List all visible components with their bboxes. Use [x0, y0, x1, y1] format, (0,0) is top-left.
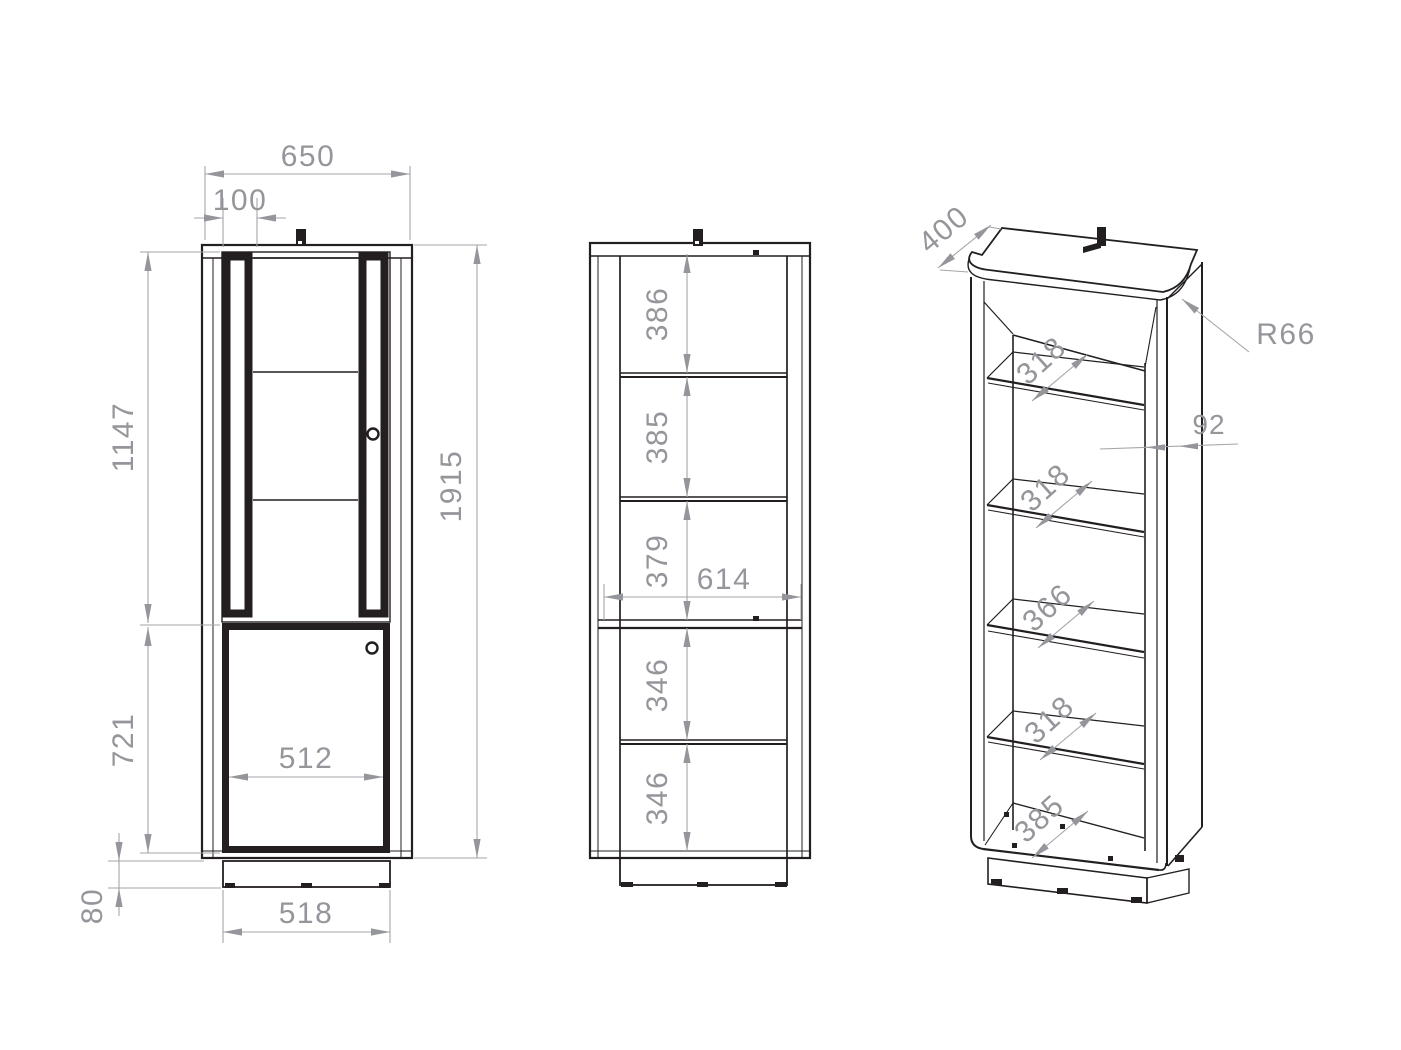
dim-front-upper-section: 1147	[107, 402, 140, 473]
dim-front-base-width: 518	[279, 897, 334, 930]
screw-hole	[1004, 812, 1009, 817]
foot-glide	[225, 883, 235, 888]
foot-glide	[1131, 897, 1142, 903]
foot-glide	[1057, 888, 1068, 894]
dim-perspective-depth: 400	[912, 200, 975, 260]
arrowhead	[1179, 443, 1198, 449]
screw-hole	[1108, 856, 1113, 861]
foot-glide	[775, 882, 787, 887]
dim-front-overall-width: 650	[281, 140, 336, 173]
hinge-mark	[753, 616, 759, 621]
foot-glide	[301, 883, 312, 888]
dim-internal-section-4: 346	[641, 658, 674, 713]
dim-shelf-2-depth: 318	[1014, 457, 1077, 518]
screw-hole	[1012, 843, 1017, 848]
dim-internal-section-5: 346	[641, 771, 674, 826]
plinth-internal	[620, 858, 787, 887]
dim-internal-section-1: 386	[641, 287, 674, 342]
dim-corner-radius: R66	[1256, 318, 1316, 351]
internal-view-dimensions: 386 385 379 346 346 614	[604, 254, 801, 851]
door-frame-strip-right	[363, 257, 385, 614]
perspective-view: 400 R66 92 318 318 366 318 385	[912, 200, 1315, 903]
screw-hole	[1060, 824, 1065, 829]
dim-front-overall-height: 1915	[435, 450, 468, 523]
cabinet-technical-drawing: 650 100 1147 721 80 191	[0, 0, 1401, 1050]
dim-internal-section-2: 385	[641, 410, 674, 465]
door-frame-strip-left	[227, 257, 249, 614]
foot-glide	[621, 882, 633, 887]
wall-mount-bracket-icon	[693, 229, 703, 246]
dim-divider-depth: 366	[1016, 577, 1079, 638]
lower-door	[226, 627, 387, 850]
front-view-dimensions: 650 100 1147 721 80 191	[76, 140, 487, 943]
dim-stile-width: 92	[1192, 409, 1225, 440]
dim-internal-section-3: 379	[641, 534, 674, 589]
door-knob	[368, 429, 379, 440]
dim-front-base-height: 80	[76, 888, 109, 924]
front-elevation-view: 650 100 1147 721 80 191	[76, 140, 487, 943]
foot-glide	[991, 879, 1002, 885]
dim-bottom-depth: 385	[1008, 788, 1071, 849]
cabinet-body-perspective	[971, 262, 1202, 870]
dim-front-lower-section: 721	[107, 713, 140, 768]
cabinet-top-panel	[968, 228, 1197, 300]
arrowhead	[1146, 444, 1165, 450]
technical-drawing-canvas: 650 100 1147 721 80 191	[0, 0, 1401, 1050]
foot-glide	[379, 883, 390, 888]
internal-elevation-view: 386 385 379 346 346 614	[590, 229, 810, 887]
glass-door	[222, 252, 390, 622]
plinth-front	[223, 861, 390, 888]
dim-internal-inner-width: 614	[697, 563, 752, 596]
dim-front-frame-strip: 100	[213, 184, 268, 217]
dim-shelf-1-depth: 318	[1010, 330, 1073, 391]
dim-front-door-opening: 512	[279, 742, 334, 775]
hinge-mark	[753, 250, 759, 255]
door-knob	[367, 643, 378, 654]
wall-mount-bracket-icon	[296, 229, 306, 246]
cabinet-carcass-internal	[590, 243, 810, 858]
wall-mount-bracket-icon	[1083, 227, 1106, 253]
foot-glide	[1175, 855, 1184, 862]
foot-glide	[697, 882, 708, 887]
dim-shelf-3-depth: 318	[1018, 689, 1081, 750]
